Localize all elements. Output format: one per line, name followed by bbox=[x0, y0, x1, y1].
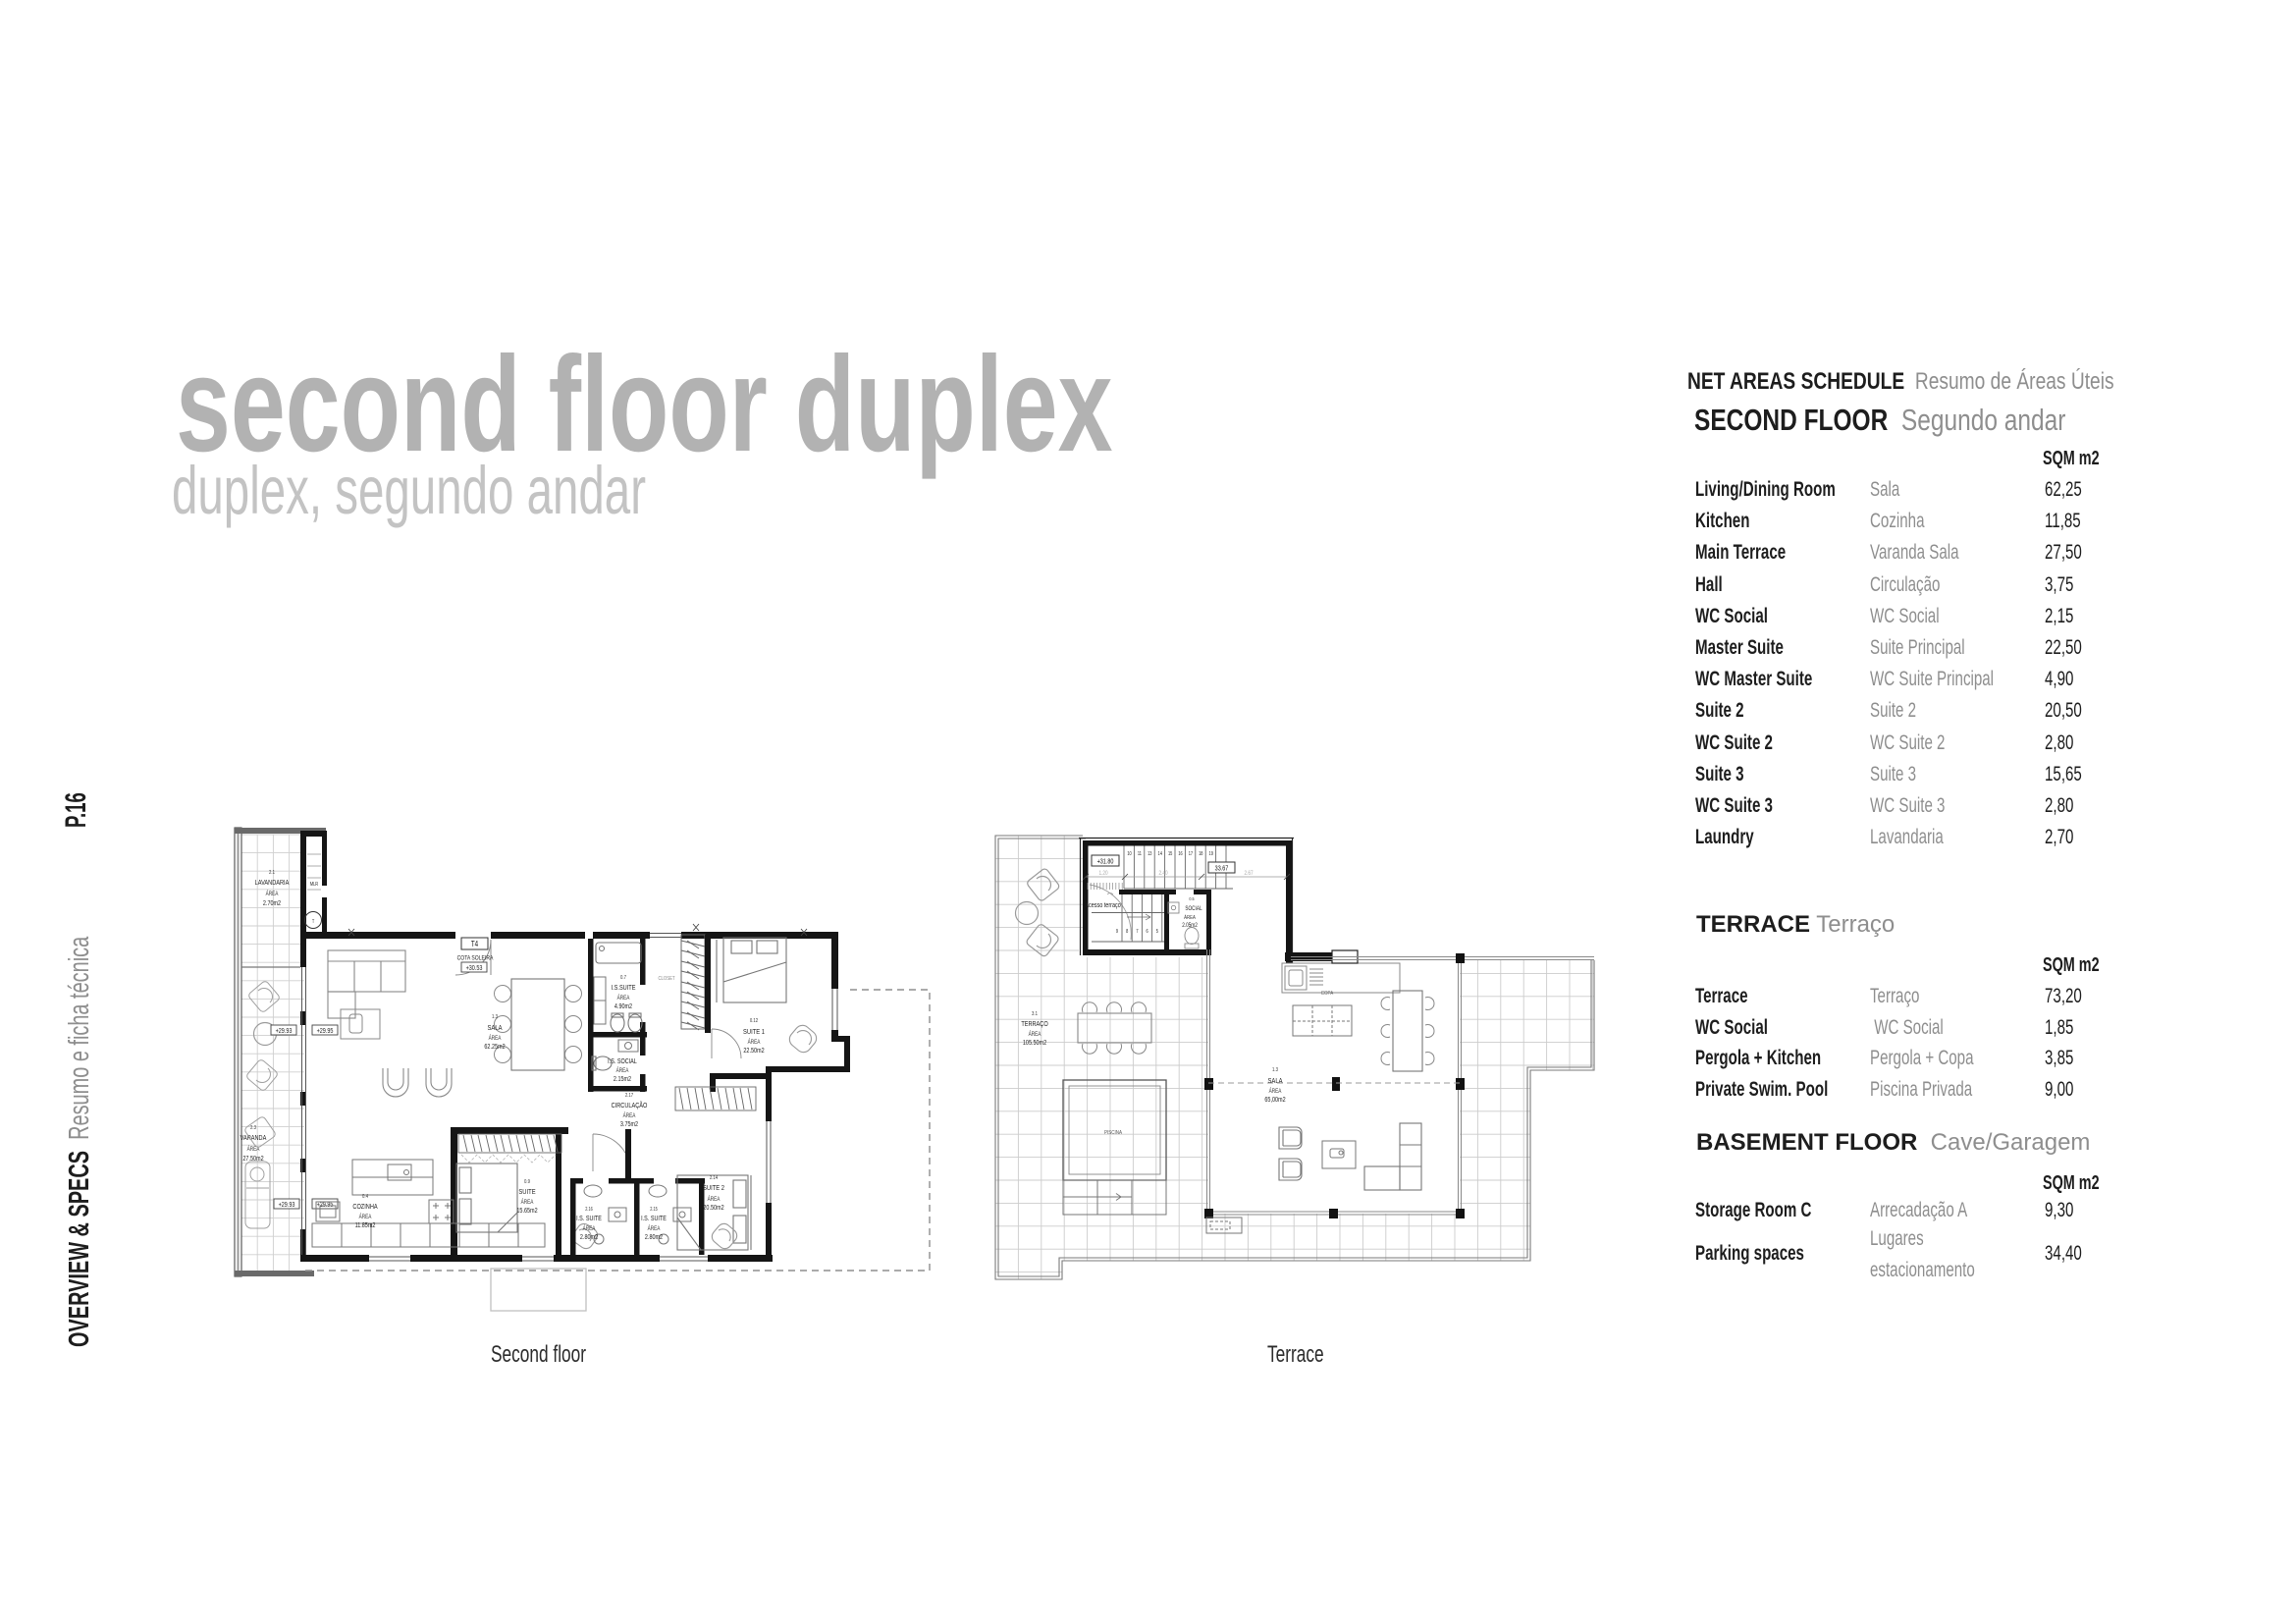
svg-text:22.50m2: 22.50m2 bbox=[743, 1047, 765, 1055]
svg-text:T: T bbox=[312, 919, 315, 925]
svg-text:13: 13 bbox=[1148, 851, 1152, 857]
svg-text:5: 5 bbox=[1156, 929, 1159, 935]
svg-text:TERRAÇO: TERRAÇO bbox=[1021, 1020, 1047, 1028]
svg-text:65,00m2: 65,00m2 bbox=[1264, 1096, 1286, 1104]
svg-text:ÁREA: ÁREA bbox=[623, 1111, 636, 1119]
svg-text:0.4: 0.4 bbox=[362, 1194, 368, 1201]
svg-text:0.5: 0.5 bbox=[1189, 896, 1195, 902]
svg-text:2.15: 2.15 bbox=[650, 1207, 658, 1213]
svg-text:11: 11 bbox=[1138, 851, 1142, 857]
svg-text:ÁREA: ÁREA bbox=[648, 1224, 661, 1232]
svg-text:T4: T4 bbox=[471, 940, 478, 948]
svg-text:7: 7 bbox=[1136, 929, 1139, 935]
svg-text:I.S. SUITE: I.S. SUITE bbox=[641, 1215, 667, 1222]
svg-text:2.15m2: 2.15m2 bbox=[614, 1075, 632, 1083]
svg-text:11.85m2: 11.85m2 bbox=[355, 1221, 376, 1229]
svg-text:2.40: 2.40 bbox=[1158, 871, 1167, 878]
svg-text:ÁREA: ÁREA bbox=[1184, 913, 1196, 921]
svg-text:VARANDA: VARANDA bbox=[240, 1134, 267, 1142]
svg-text:2.67: 2.67 bbox=[1244, 871, 1253, 878]
svg-text:COTA SOLEIRA: COTA SOLEIRA bbox=[457, 955, 494, 962]
svg-text:SOCIAL: SOCIAL bbox=[1185, 906, 1201, 913]
svg-text:14: 14 bbox=[1158, 851, 1163, 857]
svg-text:2.17: 2.17 bbox=[625, 1093, 634, 1100]
svg-text:6: 6 bbox=[1147, 929, 1149, 935]
svg-text:+30.53: +30.53 bbox=[466, 964, 483, 972]
svg-text:18: 18 bbox=[1199, 851, 1203, 857]
svg-text:MLR: MLR bbox=[310, 882, 319, 888]
svg-text:+31.80: +31.80 bbox=[1097, 858, 1114, 866]
svg-text:2.3: 2.3 bbox=[250, 1125, 256, 1132]
svg-text:1.3: 1.3 bbox=[492, 1014, 498, 1021]
svg-text:15.65m2: 15.65m2 bbox=[516, 1207, 538, 1215]
svg-text:3.75m2: 3.75m2 bbox=[620, 1120, 639, 1128]
svg-text:COZINHA: COZINHA bbox=[352, 1203, 378, 1211]
svg-text:3.1: 3.1 bbox=[1032, 1011, 1038, 1018]
svg-text:8: 8 bbox=[1126, 929, 1129, 935]
svg-text:ÁREA: ÁREA bbox=[521, 1198, 534, 1206]
svg-text:2.16: 2.16 bbox=[585, 1207, 593, 1213]
svg-text:17: 17 bbox=[1189, 851, 1194, 857]
svg-text:ÁREA: ÁREA bbox=[247, 1145, 260, 1153]
svg-text:4.90m2: 4.90m2 bbox=[614, 1002, 633, 1010]
svg-text:CIRCULAÇÃO: CIRCULAÇÃO bbox=[612, 1100, 648, 1110]
svg-text:acesso terraço: acesso terraço bbox=[1086, 901, 1121, 909]
svg-text:COPA: COPA bbox=[1321, 991, 1334, 998]
svg-text:0.12: 0.12 bbox=[750, 1018, 759, 1025]
svg-text:2.80m2: 2.80m2 bbox=[645, 1233, 664, 1241]
svg-text:15: 15 bbox=[1168, 851, 1173, 857]
svg-text:ÁREA: ÁREA bbox=[1029, 1030, 1041, 1038]
svg-text:0.9: 0.9 bbox=[524, 1179, 530, 1186]
svg-text:19: 19 bbox=[1209, 851, 1214, 857]
svg-text:SALA: SALA bbox=[488, 1024, 503, 1032]
svg-text:2.80m2: 2.80m2 bbox=[580, 1233, 599, 1241]
svg-text:+29.95: +29.95 bbox=[317, 1201, 334, 1209]
svg-text:SUITE 1: SUITE 1 bbox=[743, 1028, 765, 1036]
svg-text:SUITE 2: SUITE 2 bbox=[703, 1184, 724, 1192]
svg-text:105.50m2: 105.50m2 bbox=[1023, 1039, 1047, 1047]
svg-text:33.67: 33.67 bbox=[1215, 865, 1229, 873]
svg-text:ÁREA: ÁREA bbox=[489, 1034, 502, 1042]
svg-text:SUITE: SUITE bbox=[518, 1188, 536, 1196]
svg-text:+29.93: +29.93 bbox=[276, 1027, 293, 1035]
svg-text:16: 16 bbox=[1178, 851, 1183, 857]
svg-text:ÁREA: ÁREA bbox=[616, 1066, 629, 1074]
svg-text:I.S.SUITE: I.S.SUITE bbox=[612, 984, 637, 992]
svg-text:10: 10 bbox=[1127, 851, 1132, 857]
svg-text:+29.95: +29.95 bbox=[317, 1027, 334, 1035]
svg-text:ÁREA: ÁREA bbox=[617, 994, 630, 1001]
svg-text:CLOSET: CLOSET bbox=[658, 976, 674, 983]
svg-text:+29.93: +29.93 bbox=[279, 1201, 295, 1209]
svg-text:ÁREA: ÁREA bbox=[359, 1213, 372, 1220]
svg-text:I.S. SOCIAL: I.S. SOCIAL bbox=[608, 1057, 637, 1065]
svg-text:2.14: 2.14 bbox=[710, 1175, 719, 1182]
svg-text:ÁREA: ÁREA bbox=[748, 1038, 761, 1046]
svg-text:LAVANDARIA: LAVANDARIA bbox=[255, 879, 290, 887]
svg-text:ÁREA: ÁREA bbox=[1269, 1087, 1282, 1095]
svg-text:1.20: 1.20 bbox=[1098, 871, 1107, 878]
svg-text:PISCINA: PISCINA bbox=[1104, 1130, 1123, 1137]
svg-text:2.05m2: 2.05m2 bbox=[1182, 923, 1198, 930]
svg-text:0.7: 0.7 bbox=[620, 975, 626, 982]
svg-text:20.50m2: 20.50m2 bbox=[703, 1204, 724, 1212]
svg-text:ÁREA: ÁREA bbox=[708, 1195, 721, 1203]
svg-text:9: 9 bbox=[1116, 929, 1119, 935]
svg-text:1.3: 1.3 bbox=[1272, 1067, 1278, 1074]
svg-text:ÁREA: ÁREA bbox=[266, 890, 279, 897]
svg-text:2.1: 2.1 bbox=[269, 870, 275, 877]
svg-text:SALA: SALA bbox=[1268, 1077, 1283, 1085]
svg-text:I.S. SUITE: I.S. SUITE bbox=[576, 1215, 602, 1222]
svg-text:ÁREA: ÁREA bbox=[583, 1224, 596, 1232]
svg-text:2.70m2: 2.70m2 bbox=[263, 899, 282, 907]
svg-text:62.25m2: 62.25m2 bbox=[484, 1043, 506, 1051]
